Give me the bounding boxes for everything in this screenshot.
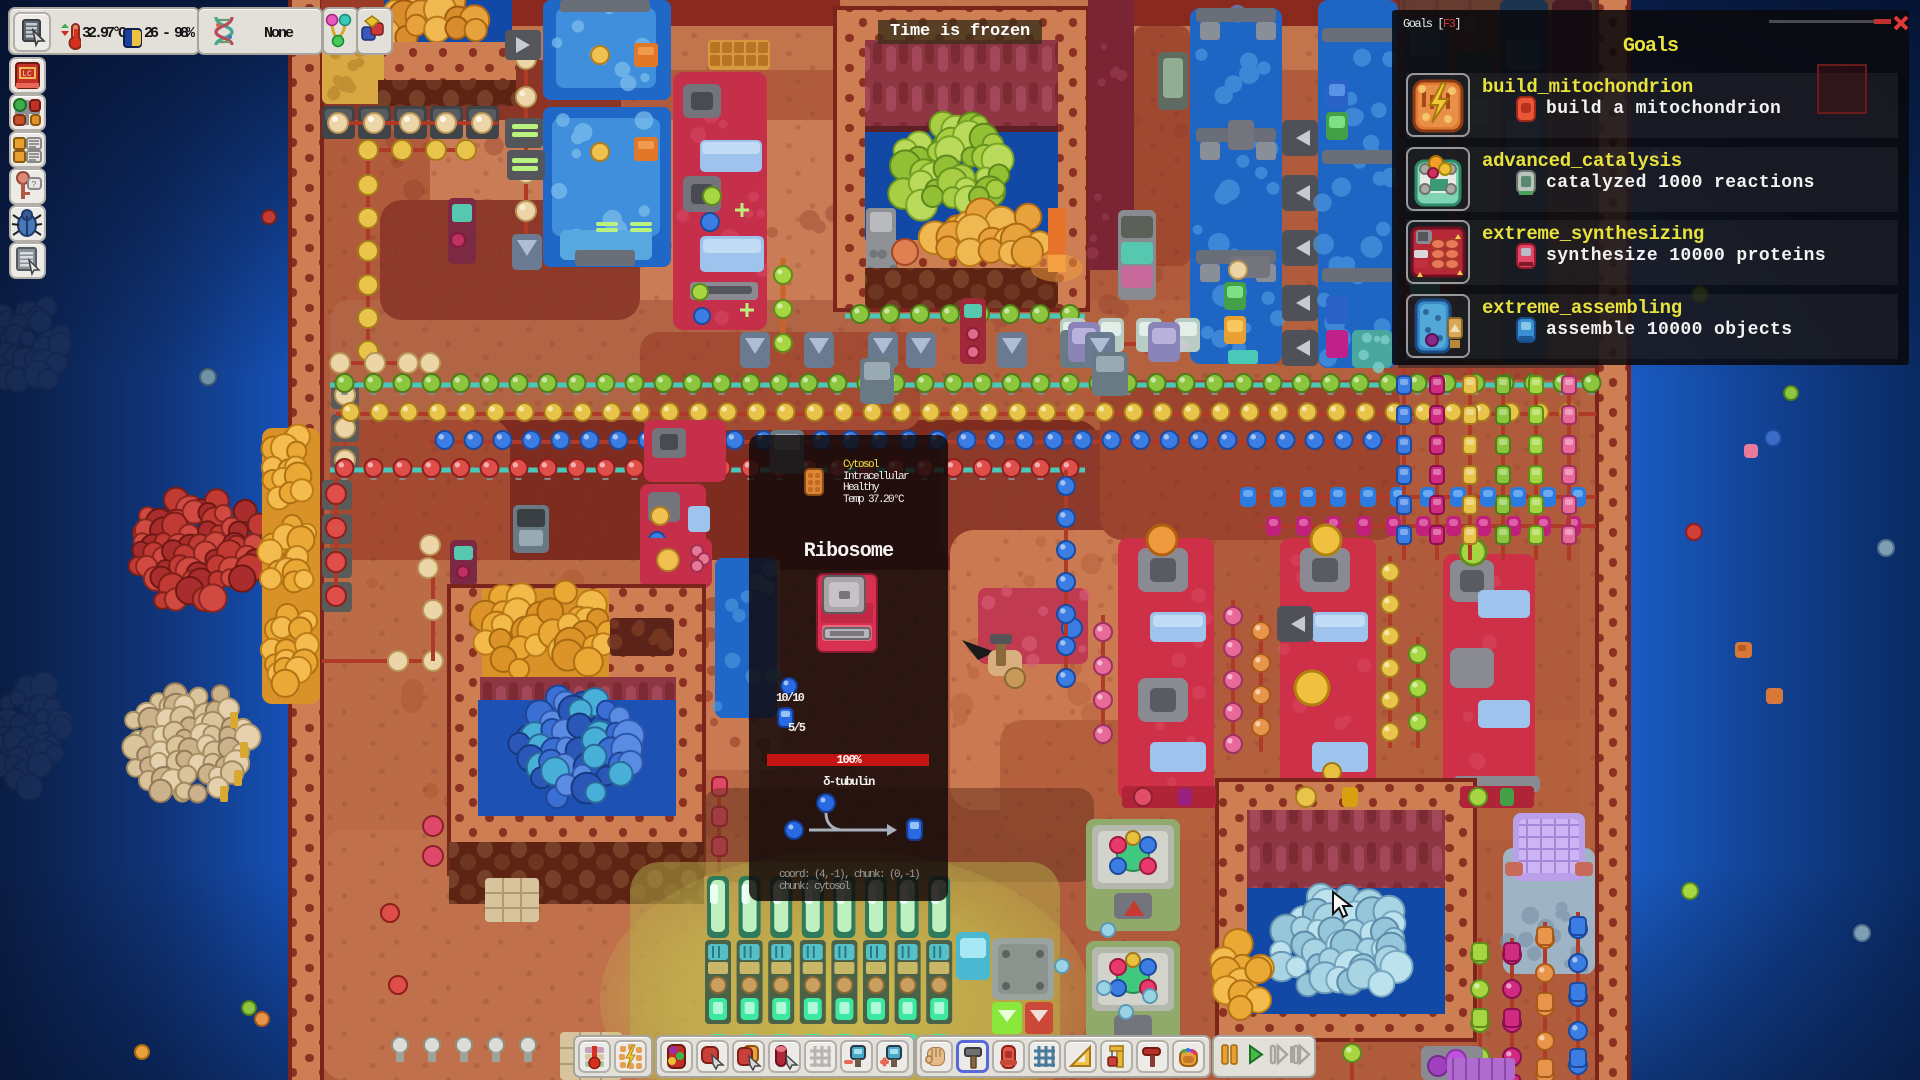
svg-text:LC: LC (22, 70, 32, 79)
svg-text:?: ? (31, 180, 36, 190)
